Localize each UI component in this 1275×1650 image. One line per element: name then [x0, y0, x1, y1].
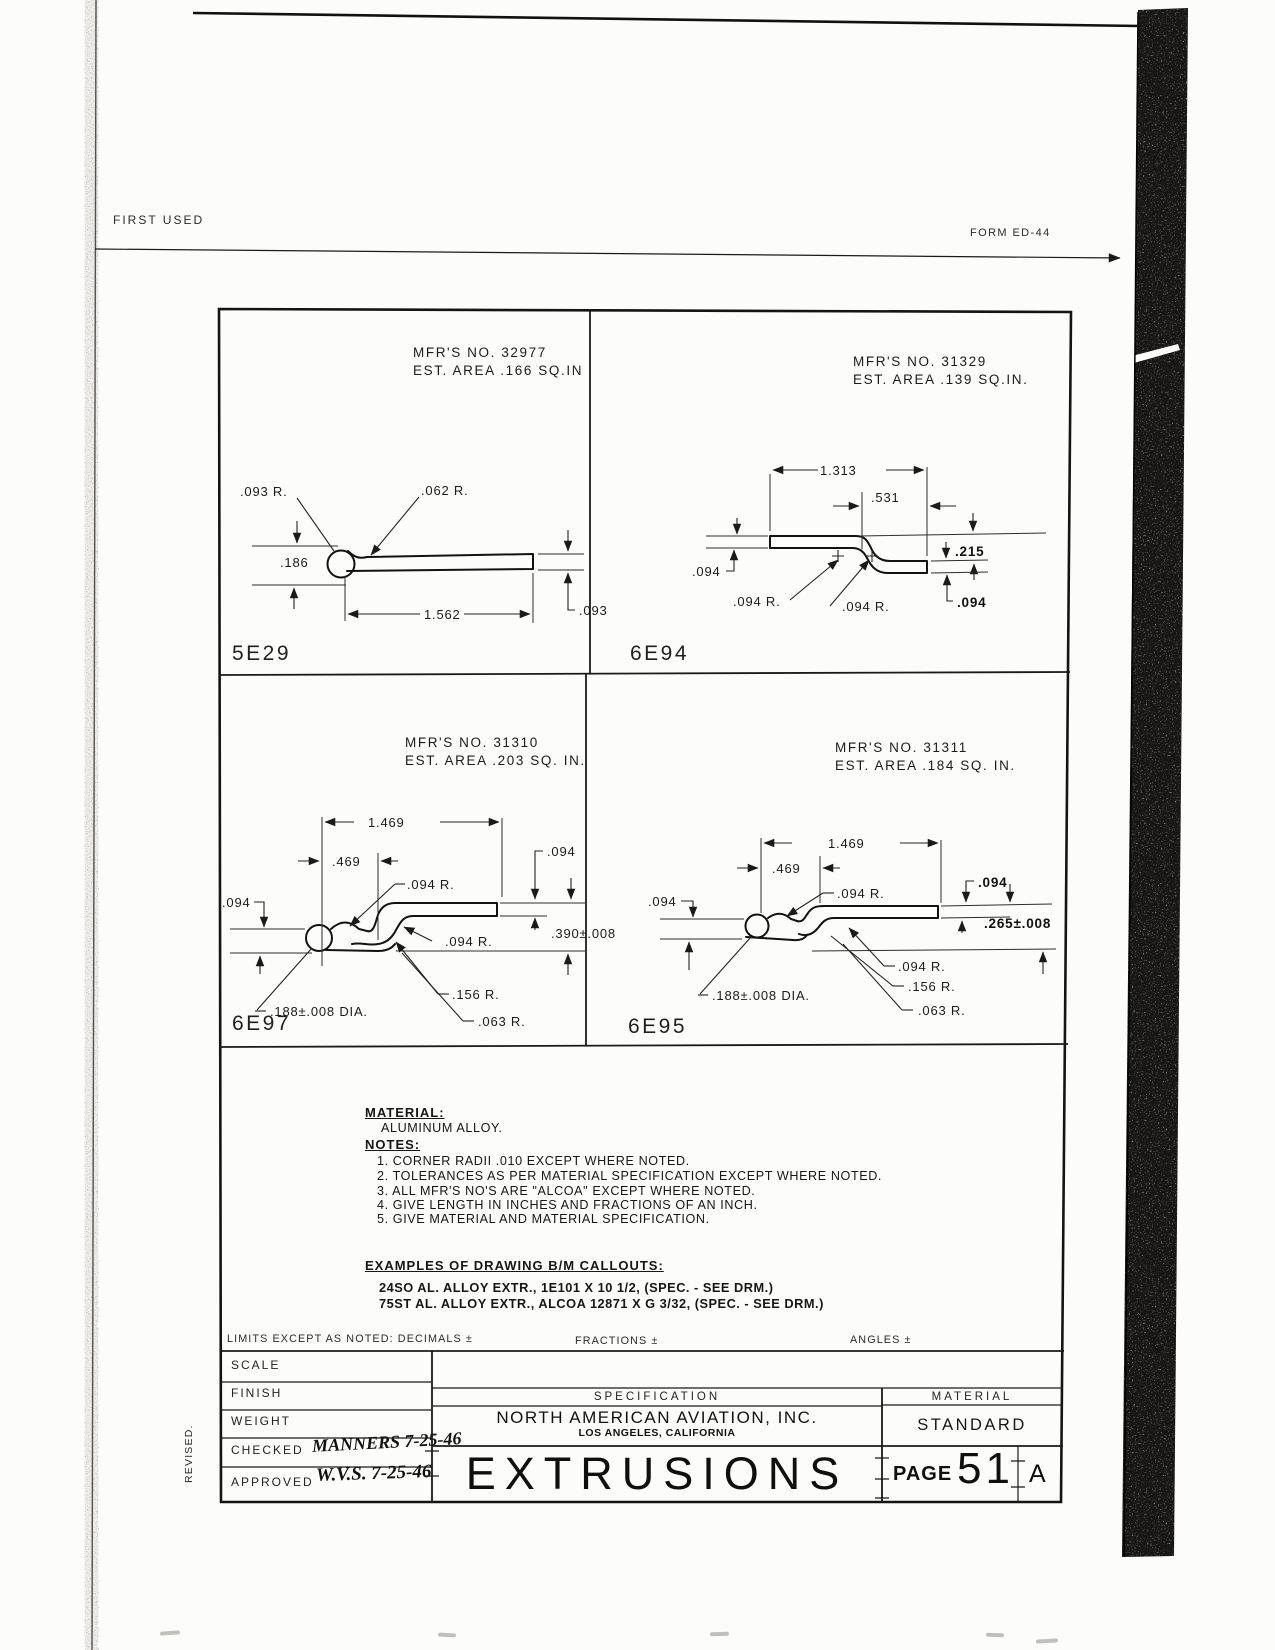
dim-label: .094 [978, 875, 1007, 890]
dim-label: .093 [579, 603, 608, 618]
dim-label: .094 [222, 895, 251, 910]
part-est-area: EST. AREA .203 SQ. IN. [405, 753, 586, 768]
dim-label: .156 R. [452, 987, 500, 1002]
drawing-linework: MFR'S NO. 32977 EST. AREA .166 SQ.IN 5E2… [0, 0, 1275, 1650]
dim-label: .094 [547, 844, 576, 859]
dim-label: .094 R. [445, 934, 493, 949]
dimensions-6e97: 1.469 .469 .094 R. .094 .390±.008 .094 [222, 815, 616, 1029]
header-rules [95, 13, 1141, 258]
dim-label: .093 R. [240, 484, 288, 499]
dim-label: 1.469 [368, 815, 405, 830]
scan-right-band [1115, 0, 1195, 1560]
dim-label: .094 R. [837, 886, 885, 901]
dim-label: .063 R. [478, 1014, 526, 1029]
profile-6e94 [770, 536, 927, 573]
part-id-label: 6E94 [630, 642, 689, 665]
dim-label: .265±.008 [984, 916, 1051, 931]
dim-label: .469 [772, 861, 801, 876]
part-drawing-6e94: MFR'S NO. 31329 EST. AREA .139 SQ.IN. 6E… [630, 354, 1046, 665]
dim-label: 1.469 [828, 836, 865, 851]
dimensions-6e95: 1.469 .469 .094 R. .094 .094 .265±.008 [648, 836, 1056, 1018]
dimensions-6e94: 1.313 .531 .094 .215 .094 .094 R. [692, 463, 1046, 614]
scan-left-strip [85, 0, 98, 1650]
dim-label: .062 R. [421, 483, 469, 498]
dim-label: .215 [955, 544, 984, 559]
part-mfr-no: MFR'S NO. 31310 [405, 735, 539, 750]
part-id-label: 5E29 [232, 642, 291, 665]
profile-5e29 [328, 551, 534, 578]
dim-label: 1.562 [424, 607, 461, 622]
dim-label: .094 R. [733, 594, 781, 609]
part-mfr-no: MFR'S NO. 31311 [835, 740, 968, 755]
part-id-label: 6E95 [628, 1015, 687, 1038]
dimensions-5e29: .093 R. .062 R. .186 1.562 .093 [240, 483, 608, 623]
profile-6e95 [746, 906, 939, 940]
dim-label: .063 R. [918, 1003, 966, 1018]
dim-label: .094 R. [842, 599, 890, 614]
part-mfr-no: MFR'S NO. 32977 [413, 345, 547, 360]
part-drawing-6e95: MFR'S NO. 31311 EST. AREA .184 SQ. IN. 6… [628, 740, 1056, 1038]
part-est-area: EST. AREA .139 SQ.IN. [853, 372, 1028, 387]
dim-label: 1.313 [820, 463, 857, 478]
part-drawing-6e97: MFR'S NO. 31310 EST. AREA .203 SQ. IN. 6… [222, 735, 616, 1035]
dim-label: .390±.008 [551, 926, 616, 941]
dim-label: .094 [692, 564, 721, 579]
part-est-area: EST. AREA .184 SQ. IN. [835, 758, 1016, 773]
dim-label: .469 [332, 854, 361, 869]
dim-label: .531 [871, 490, 900, 505]
dim-label: .094 R. [407, 877, 455, 892]
part-est-area: EST. AREA .166 SQ.IN [413, 363, 583, 378]
dim-label: .188±.008 DIA. [270, 1004, 368, 1019]
dim-label: .188±.008 DIA. [712, 988, 810, 1003]
dim-label: .094 [957, 595, 986, 610]
scanned-drawing-sheet: FIRST USED FORM ED-44 MATERIAL: ALUMINUM… [0, 0, 1275, 1650]
dim-label: .186 [280, 555, 309, 570]
part-drawing-5e29: MFR'S NO. 32977 EST. AREA .166 SQ.IN 5E2… [232, 345, 608, 665]
dim-label: .094 R. [898, 959, 946, 974]
part-mfr-no: MFR'S NO. 31329 [853, 354, 987, 369]
dim-label: .156 R. [908, 979, 956, 994]
dim-label: .094 [648, 894, 677, 909]
